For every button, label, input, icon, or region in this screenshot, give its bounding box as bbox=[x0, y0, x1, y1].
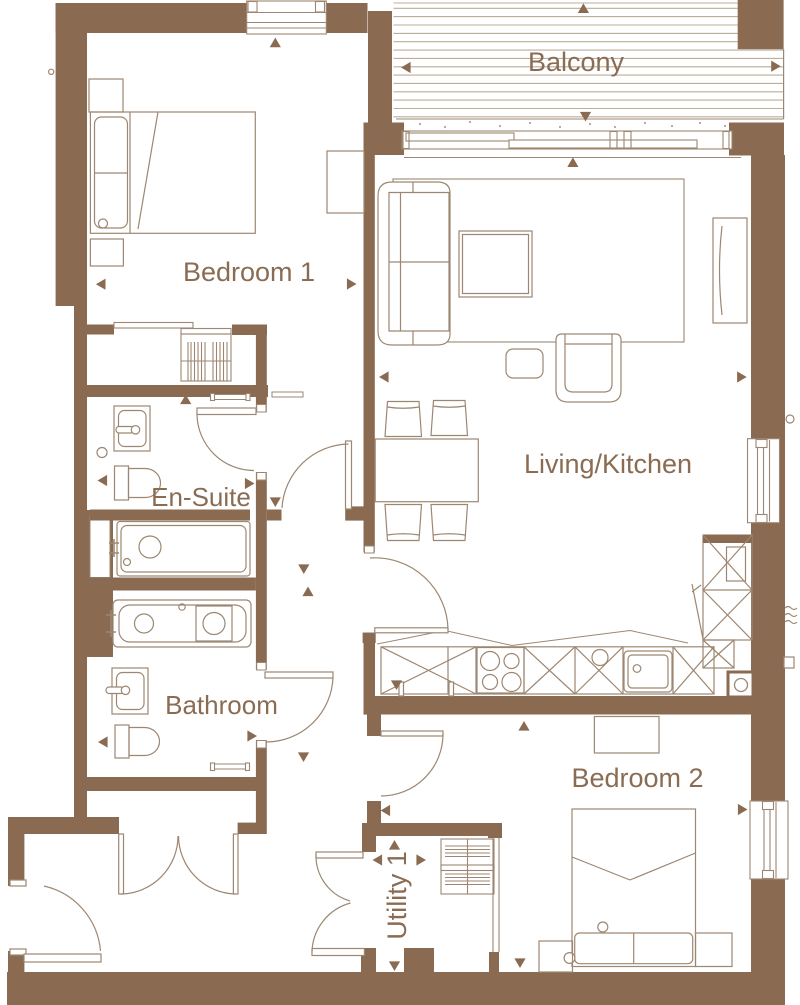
svg-text:Bedroom 2: Bedroom 2 bbox=[571, 763, 703, 793]
svg-text:Living/Kitchen: Living/Kitchen bbox=[524, 449, 692, 479]
svg-text:Bathroom: Bathroom bbox=[165, 690, 278, 720]
svg-text:Bedroom 1: Bedroom 1 bbox=[183, 257, 315, 287]
svg-text:Utility 1: Utility 1 bbox=[382, 851, 412, 940]
svg-text:En-Suite: En-Suite bbox=[151, 482, 251, 512]
svg-text:Balcony: Balcony bbox=[528, 47, 625, 77]
